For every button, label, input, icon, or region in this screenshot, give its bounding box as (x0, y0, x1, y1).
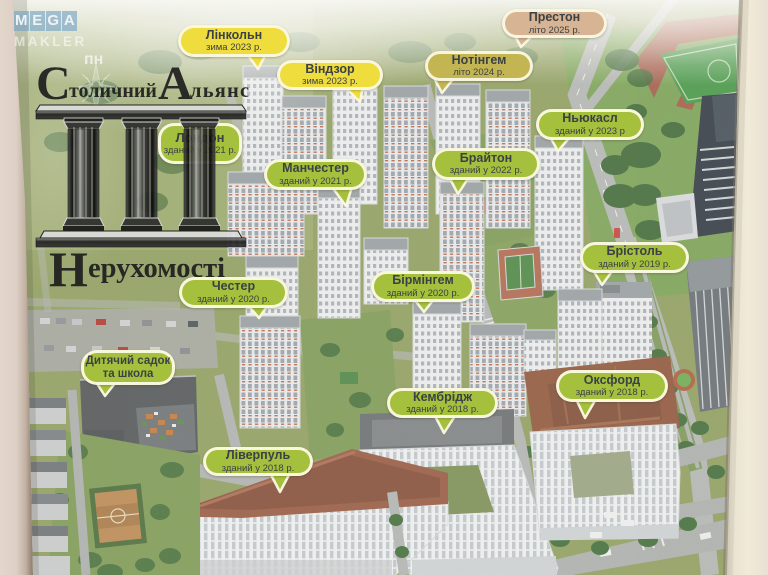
svg-text:льянс: льянс (190, 80, 250, 102)
svg-text:пн: пн (84, 51, 103, 68)
svg-text:С: С (36, 57, 71, 110)
svg-text:Н: Н (49, 241, 88, 297)
svg-text:А: А (158, 57, 193, 110)
svg-text:толичний: толичний (69, 80, 157, 102)
